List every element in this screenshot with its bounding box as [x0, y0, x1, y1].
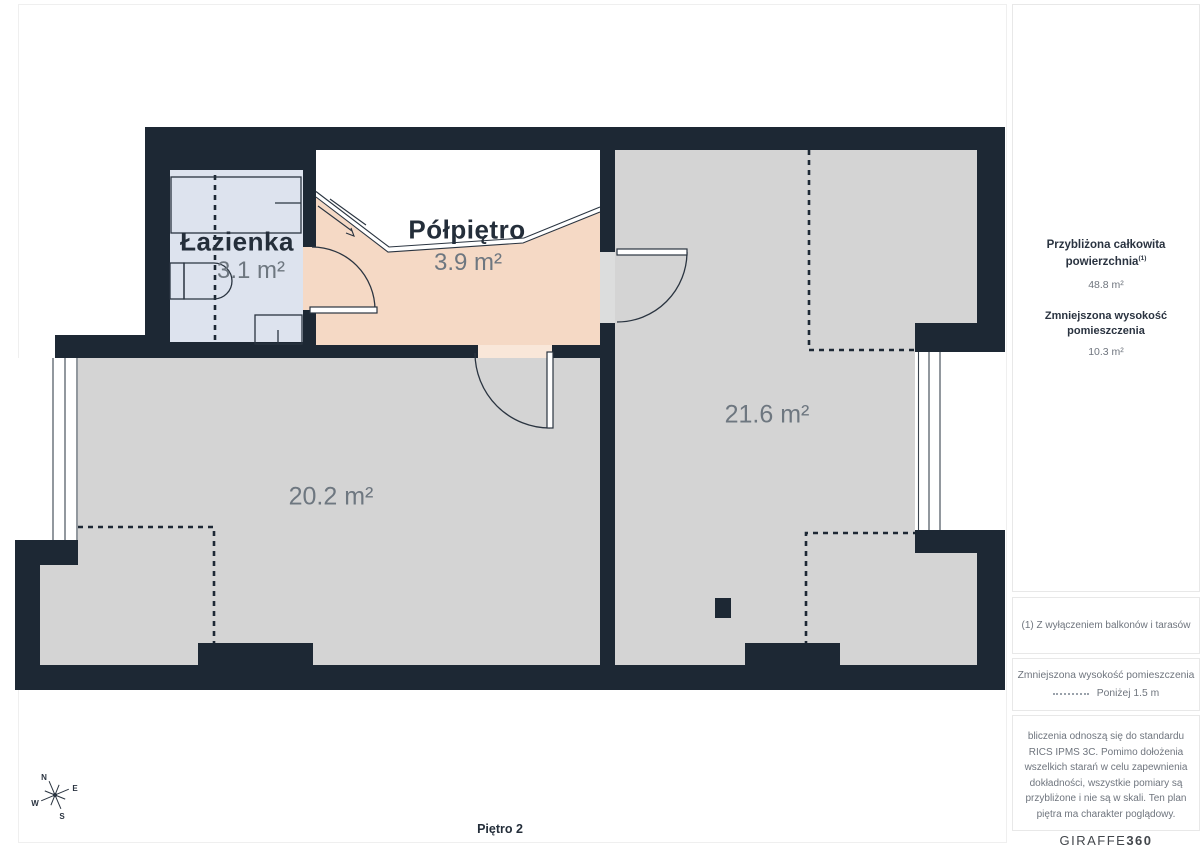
room-left-fill	[40, 358, 600, 665]
room-label-bathroom: Łazienka	[180, 227, 294, 258]
compass-rose: N E W S	[31, 773, 78, 821]
disclaimer-box: bliczenia odnoszą się do standardu RICS …	[1012, 715, 1200, 831]
room-area-right: 21.6 m²	[725, 401, 810, 430]
floor-plan-page: N E W S Łazienka 3.1 m² Półpiętro 3.9 m²…	[0, 0, 1200, 849]
reduced-height-title: Zmniejszona wysokość pomieszczenia	[1025, 309, 1187, 340]
compass-w: W	[31, 799, 39, 808]
reduced-height-value: 10.3 m²	[1025, 346, 1187, 358]
pillar	[715, 598, 731, 618]
total-area-title: Przybliżona całkowita powierzchnia(1)	[1025, 237, 1187, 272]
compass-n: N	[41, 773, 47, 782]
sidebar: Przybliżona całkowita powierzchnia(1) 48…	[1012, 0, 1200, 849]
footnote-marker: (1)	[1138, 255, 1146, 262]
total-area-box: Przybliżona całkowita powierzchnia(1) 48…	[1012, 4, 1200, 592]
room-label-mezzanine: Półpiętro	[408, 215, 525, 246]
room-area-bathroom: 3.1 m²	[217, 257, 285, 285]
compass-e: E	[72, 784, 78, 793]
total-area-value: 48.8 m²	[1025, 279, 1187, 291]
stair-door-threshold	[478, 345, 552, 358]
compass-s: S	[59, 812, 65, 821]
bathroom-door-gap	[303, 247, 316, 310]
legend-label: Poniżej 1.5 m	[1097, 688, 1159, 699]
footnote-box: (1) Z wyłączeniem balkonów i tarasów	[1012, 597, 1200, 654]
right-door-threshold	[600, 252, 615, 323]
window-right	[918, 352, 1005, 530]
floor-label: Piętro 2	[477, 822, 523, 836]
giraffe360-logo: GIRAFFE360	[1023, 833, 1189, 848]
window-left	[18, 358, 78, 542]
dashed-line-sample	[1053, 693, 1089, 695]
legend-title: Zmniejszona wysokość pomieszczenia	[1018, 670, 1195, 681]
footnote-text: (1) Z wyłączeniem balkonów i tarasów	[1014, 620, 1199, 631]
room-area-left: 20.2 m²	[289, 483, 374, 512]
legend-box: Zmniejszona wysokość pomieszczenia Poniż…	[1012, 658, 1200, 711]
room-area-mezzanine: 3.9 m²	[434, 249, 502, 277]
disclaimer-text: bliczenia odnoszą się do standardu RICS …	[1023, 729, 1189, 822]
